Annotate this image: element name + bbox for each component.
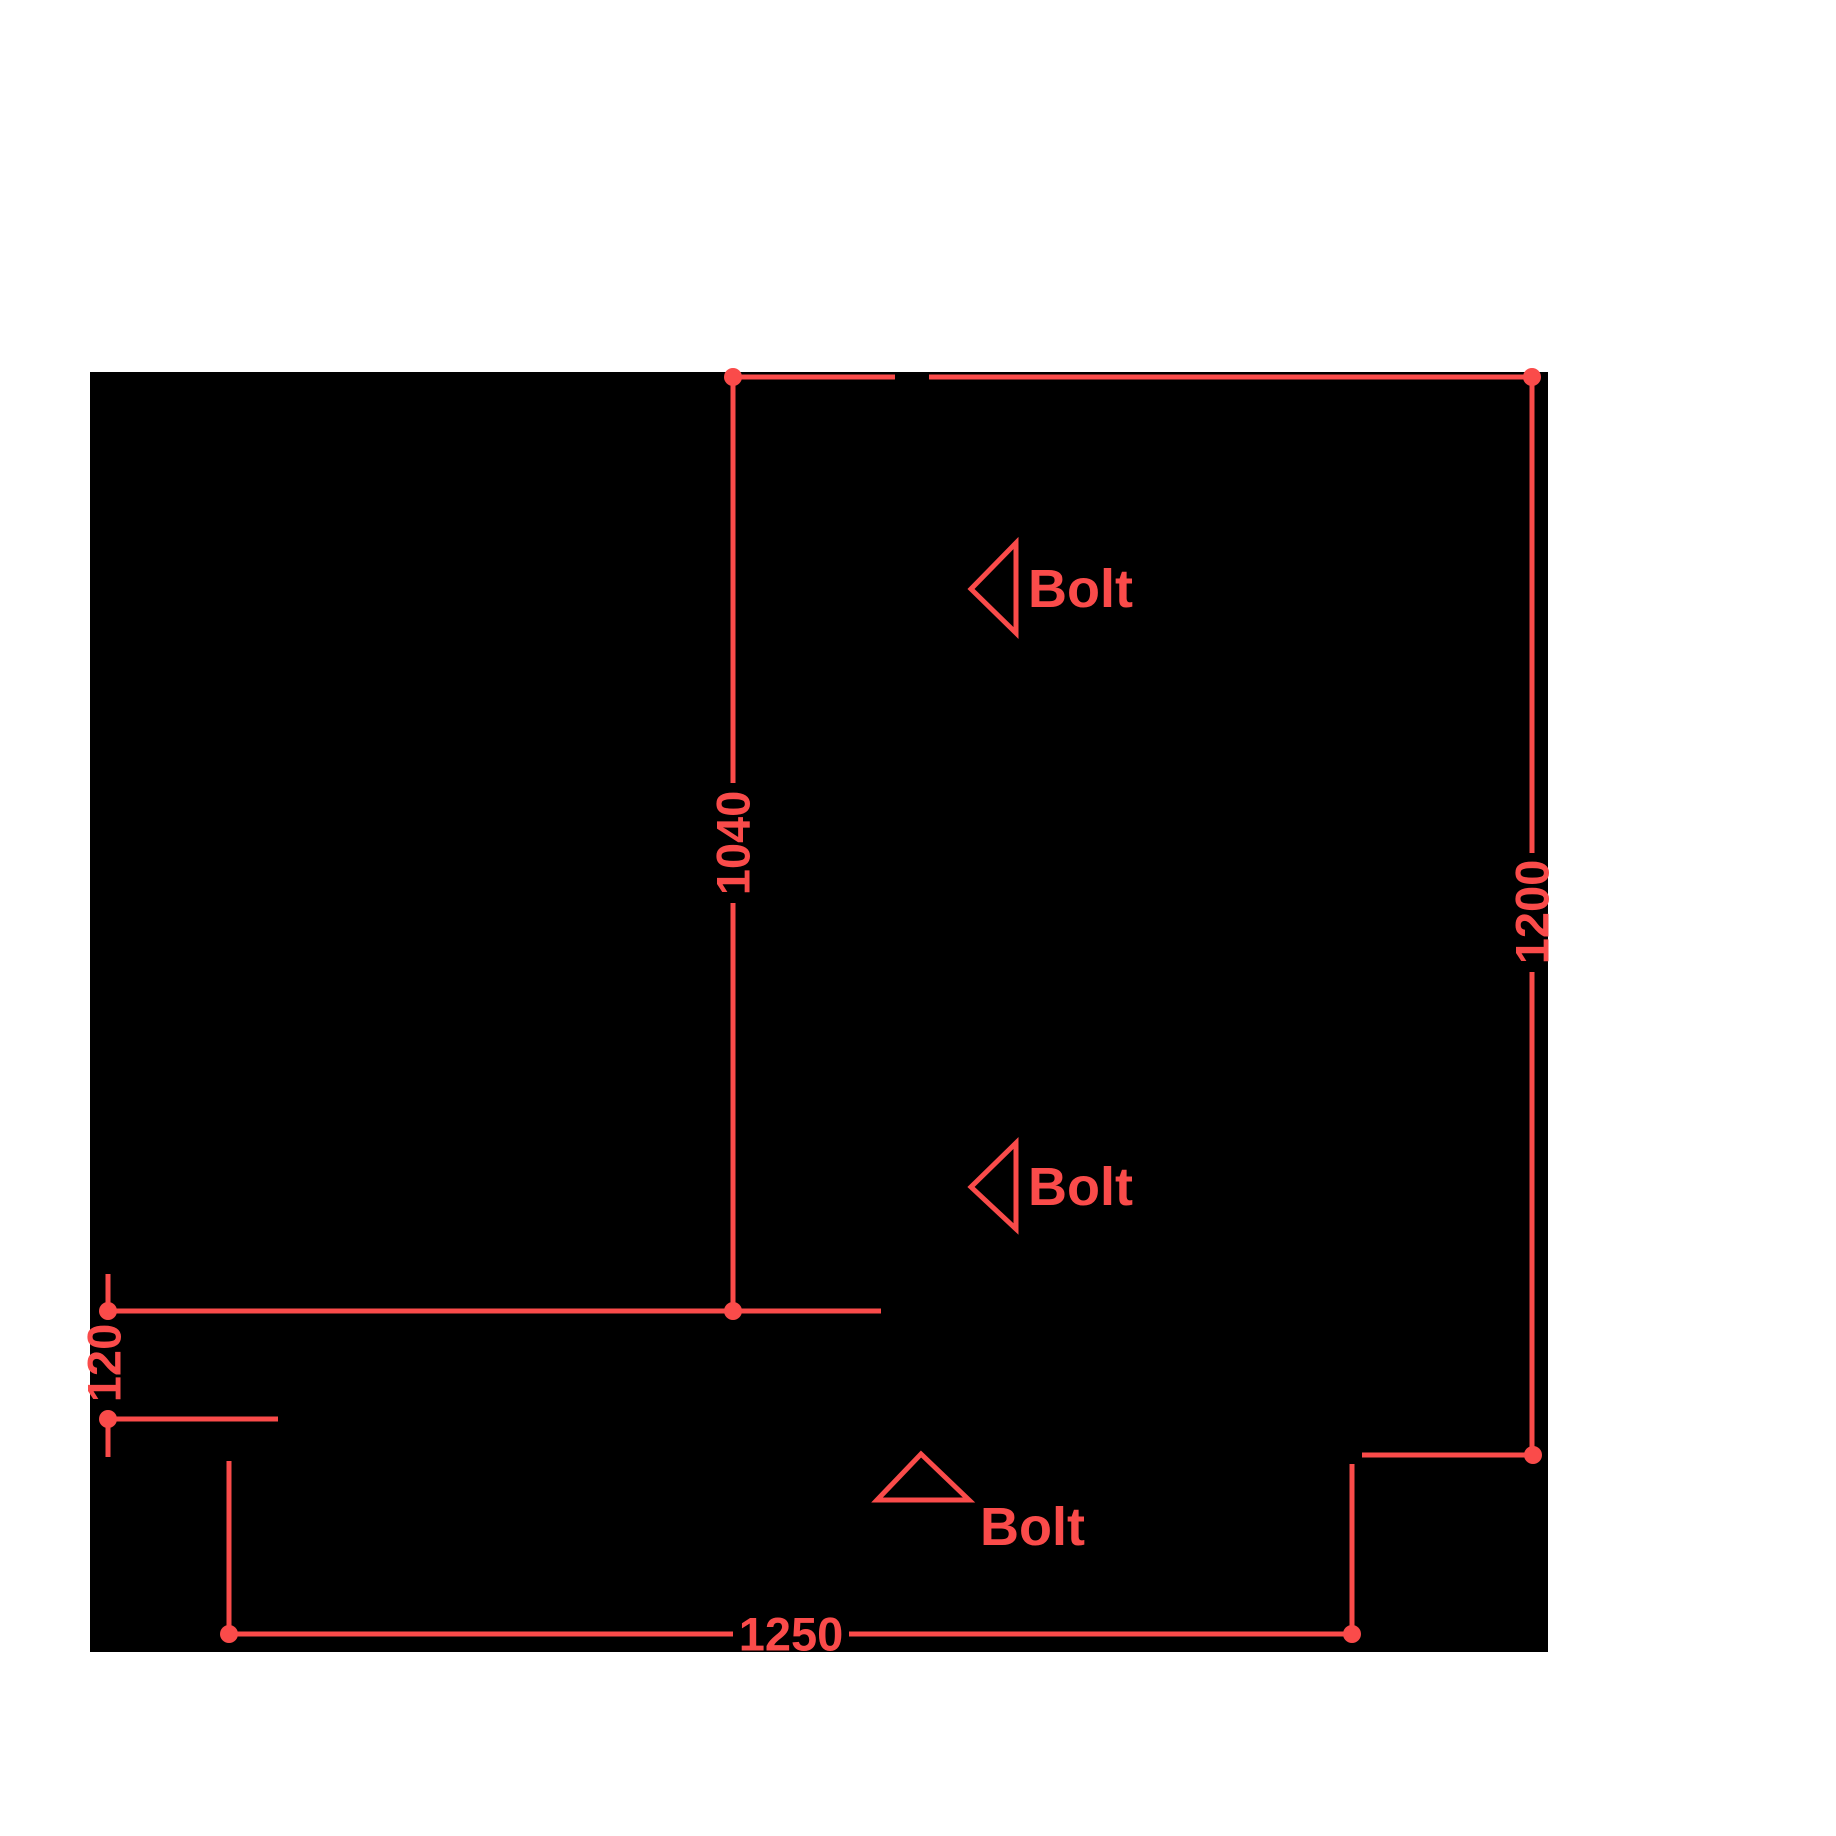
endpoint-dot (724, 1302, 742, 1320)
endpoint-dot (724, 368, 742, 386)
bolt-label-upper: Bolt (1028, 562, 1133, 616)
endpoint-dot (1523, 368, 1541, 386)
dim-value-120: 120 (81, 1324, 128, 1402)
bolt-label-lower: Bolt (980, 1500, 1085, 1554)
bolt-marker-upper-icon (971, 543, 1016, 633)
dimension-lines (108, 377, 1533, 1634)
bolt-marker-middle-icon (971, 1143, 1016, 1229)
endpoint-dot (1343, 1625, 1361, 1643)
endpoint-dot (99, 1410, 117, 1428)
top-edge-tab (893, 372, 931, 381)
endpoint-dot (99, 1302, 117, 1320)
endpoint-dot (220, 1625, 238, 1643)
dim-value-1040: 1040 (710, 791, 757, 896)
dim-value-1200: 1200 (1509, 860, 1556, 965)
endpoint-dot (1524, 1446, 1542, 1464)
dim-value-1250: 1250 (739, 1611, 844, 1658)
dimension-endpoint-dots (99, 368, 1542, 1643)
dimension-lines-layer (0, 0, 1836, 1836)
bolt-marker-lower-icon (877, 1454, 969, 1500)
drawing-canvas: 1040 1200 120 1250 Bolt Bolt Bolt (0, 0, 1836, 1836)
bolt-label-middle: Bolt (1028, 1160, 1133, 1214)
